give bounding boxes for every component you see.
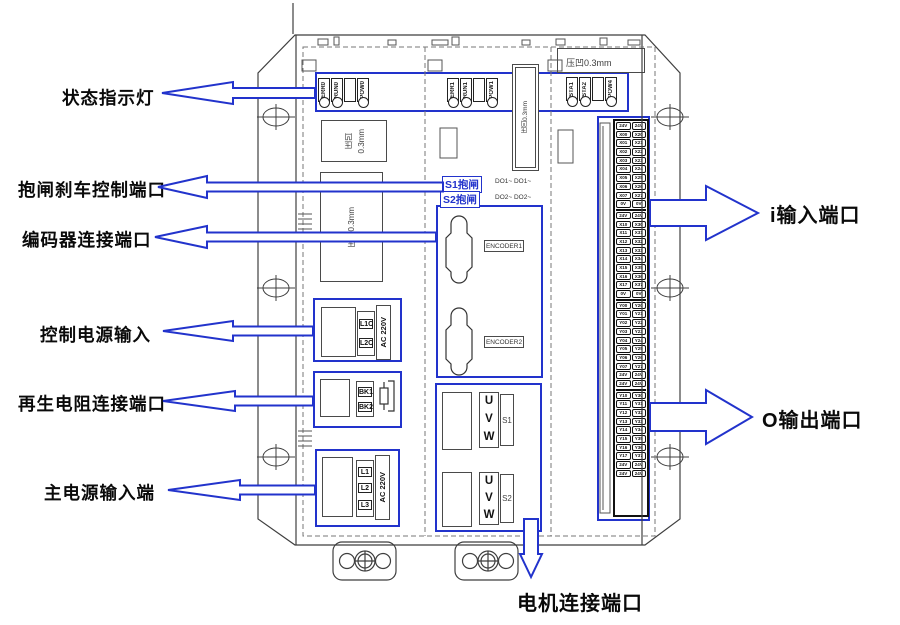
io-terminal-row: Y10Y30: [616, 392, 646, 400]
servo-drive-diagram: 状态指示灯 抱闸刹车控制端口 编码器连接端口 控制电源输入 再生电阻连接端口 主…: [0, 0, 900, 625]
io-terminal: X15: [616, 264, 631, 272]
led-label: ERR0: [321, 82, 327, 98]
io-terminal: Y13: [616, 418, 631, 426]
io-terminal: Y35: [632, 435, 647, 443]
earth-terminal-icon: [355, 551, 375, 571]
callout-motor-port-label: 电机连接端口: [517, 587, 643, 616]
led-label: STA2: [582, 82, 588, 97]
io-terminal: Y06: [616, 354, 631, 362]
io-terminal: Y27: [632, 363, 647, 371]
io-terminal: Y33: [632, 418, 647, 426]
led-lamp: [606, 96, 617, 107]
io-terminal: 24V: [616, 380, 631, 388]
io-terminal: Y12: [616, 409, 631, 417]
io-terminal-array: 24V24VX00X20X01X21X02X22X03X23X04X24X05X…: [613, 119, 649, 517]
terminal-label: BK2: [358, 402, 372, 412]
io-terminal: 0V: [632, 290, 647, 298]
terminal-label: L2C: [359, 338, 373, 348]
arrow-encoder: [155, 226, 436, 248]
io-terminal-group: Y00Y20Y01Y21Y02Y22Y03Y23Y04Y24Y05Y25Y06Y…: [616, 302, 646, 391]
motor-connector-1: [442, 392, 472, 450]
io-terminal: X00: [616, 131, 631, 139]
io-terminal-row: X11X31: [616, 229, 646, 237]
io-terminal-group: Y10Y30Y11Y31Y12Y32Y13Y33Y14Y34Y15Y35Y16Y…: [616, 392, 646, 478]
io-terminal-row: X16X36: [616, 273, 646, 281]
led-lamp: [358, 97, 369, 108]
io-terminal-row: X15X35: [616, 264, 646, 272]
io-terminal: Y20: [632, 302, 647, 310]
io-terminal-row: Y15Y35: [616, 435, 646, 443]
voltage-text: AC 220V: [378, 472, 387, 502]
io-terminal: X34: [632, 255, 647, 263]
io-terminal: Y01: [616, 310, 631, 318]
io-terminal-row: Y04Y24: [616, 337, 646, 345]
io-terminal: 0V: [616, 200, 631, 208]
io-terminal-row: X07X27: [616, 192, 646, 200]
io-terminal-group: 24V24VX10X30X11X31X12X32X13X33X14X34X15X…: [616, 212, 646, 301]
io-terminal-row: Y02Y22: [616, 319, 646, 327]
main-power-connector: [322, 457, 353, 517]
arrow-brake: [158, 176, 443, 198]
io-terminal-row: X00X20: [616, 131, 646, 139]
io-terminal: X06: [616, 183, 631, 191]
encoder2-label: ENCODER2: [484, 336, 524, 348]
io-terminal: Y21: [632, 310, 647, 318]
brake-s2-label: S2抱闸: [440, 191, 480, 208]
io-terminal: Y37: [632, 452, 647, 460]
motor-s1-box: S1: [500, 394, 514, 446]
io-terminal: X14: [616, 255, 631, 263]
io-terminal-row: Y12Y32: [616, 409, 646, 417]
io-terminal: X36: [632, 273, 647, 281]
emboss-box-middle: 压凹0.3mm: [512, 64, 539, 171]
io-terminal: Y02: [616, 319, 631, 327]
arrow-output-port: [650, 390, 752, 444]
terminal-label: V: [480, 493, 498, 505]
main-power-terminals: L1L2L3: [356, 460, 374, 517]
io-terminal-row: X06X26: [616, 183, 646, 191]
led-lamp: [448, 97, 459, 108]
io-terminal: Y10: [616, 392, 631, 400]
io-terminal-row: Y11Y31: [616, 400, 646, 408]
io-terminal: X11: [616, 229, 631, 237]
io-terminal: 24V: [632, 380, 647, 388]
io-terminal: X03: [616, 157, 631, 165]
callout-regen-label: 再生电阻连接端口: [18, 391, 166, 416]
io-terminal: X17: [616, 281, 631, 289]
io-terminal-row: Y05Y25: [616, 345, 646, 353]
emboss-text: 压凹0.3mm: [346, 207, 357, 247]
io-terminal: 24V: [616, 122, 631, 130]
led-lamp: [332, 97, 343, 108]
motor-s2-box: S2: [500, 474, 514, 523]
led-lamp: [461, 97, 472, 108]
callout-input-port-label: i输入端口: [770, 199, 861, 228]
io-terminal: X10: [616, 221, 631, 229]
io-terminal: 24V: [632, 212, 647, 220]
terminal-label: L3: [358, 500, 372, 510]
emboss-text: 0.3mm: [357, 129, 366, 153]
regen-connector: [320, 379, 350, 417]
arrow-control-power: [163, 321, 313, 341]
led-slot: [473, 78, 485, 102]
io-terminal-group: 24V24VX00X20X01X21X02X22X03X23X04X24X05X…: [616, 122, 646, 211]
callout-brake-label: 抱闸刹车控制端口: [18, 177, 166, 202]
io-terminal-row: Y06Y26: [616, 354, 646, 362]
terminal-label: U: [480, 396, 498, 408]
arrow-input-port: [650, 186, 758, 240]
led-group-2: STA1STA2POW4: [566, 76, 618, 108]
io-terminal: X13: [616, 247, 631, 255]
io-terminal: Y00: [616, 302, 631, 310]
io-terminal-row: X03X23: [616, 157, 646, 165]
io-terminal-row: Y17Y37: [616, 452, 646, 460]
io-terminal: X01: [616, 139, 631, 147]
io-terminal-row: 24V24V: [616, 122, 646, 130]
io-terminal-row: X13X33: [616, 247, 646, 255]
io-terminal: X27: [632, 192, 647, 200]
led-lamp: [580, 96, 591, 107]
io-terminal: Y36: [632, 444, 647, 452]
io-terminal: X30: [632, 221, 647, 229]
io-terminal: X16: [616, 273, 631, 281]
control-power-terminals: L1CL2C: [357, 311, 375, 356]
io-terminal-row: 24V24V: [616, 212, 646, 220]
arrow-regen: [163, 391, 313, 411]
terminal-label: L1C: [359, 319, 373, 329]
io-terminal-row: X12X32: [616, 238, 646, 246]
io-terminal: X04: [616, 165, 631, 173]
io-terminal: 0V: [616, 290, 631, 298]
terminal-label: L1: [358, 467, 372, 477]
io-terminal: Y07: [616, 363, 631, 371]
io-terminal: 24V: [616, 212, 631, 220]
io-terminal: X24: [632, 165, 647, 173]
terminal-label: L2: [358, 483, 372, 493]
led-lamp: [319, 97, 330, 108]
terminal-label: BK1: [358, 387, 372, 397]
io-terminal-row: X10X30: [616, 221, 646, 229]
io-terminal-row: X17X37: [616, 281, 646, 289]
control-power-connector: [321, 307, 356, 357]
io-terminal: Y17: [616, 452, 631, 460]
encoder2-text: ENCODER2: [486, 339, 522, 346]
io-terminal: Y16: [616, 444, 631, 452]
io-terminal: Y03: [616, 328, 631, 336]
io-terminal: Y14: [616, 426, 631, 434]
led-slot: [344, 78, 356, 102]
emboss-box-left-large: 压凹0.3mm: [320, 172, 383, 282]
io-terminal: 24V: [632, 122, 647, 130]
io-terminal: X37: [632, 281, 647, 289]
io-terminal: X20: [632, 131, 647, 139]
io-terminal: X12: [616, 238, 631, 246]
io-terminal: Y23: [632, 328, 647, 336]
io-terminal: 24V: [632, 461, 647, 469]
encoder1-label: ENCODER1: [484, 240, 524, 252]
main-power-voltage: AC 220V: [375, 455, 390, 520]
arrow-status: [162, 82, 315, 104]
io-terminal: Y25: [632, 345, 647, 353]
emboss-box-right-top: 压凹0.3mm: [557, 48, 645, 73]
motor-uvw-1: UVW: [479, 392, 499, 448]
io-terminal-row: X05X25: [616, 174, 646, 182]
encoder-port-box: [436, 205, 543, 378]
motor-uvw-2: UVW: [479, 472, 499, 525]
io-terminal: X25: [632, 174, 647, 182]
io-terminal-row: 24V24V: [616, 470, 646, 478]
io-terminal-row: X04X24: [616, 165, 646, 173]
led-group-0: ERR0RUN0POW0: [318, 77, 370, 109]
io-terminal: X07: [616, 192, 631, 200]
io-terminal: X02: [616, 148, 631, 156]
io-terminal: X31: [632, 229, 647, 237]
io-terminal: Y04: [616, 337, 631, 345]
io-terminal: X05: [616, 174, 631, 182]
io-terminal: X35: [632, 264, 647, 272]
brake-do1-label: DO1~ DO1~: [495, 178, 531, 185]
io-terminal-row: X01X21: [616, 139, 646, 147]
led-label: STA1: [569, 82, 575, 97]
motor-s1-text: S1: [502, 416, 512, 425]
io-terminal: Y15: [616, 435, 631, 443]
io-terminal-row: 24V24V: [616, 461, 646, 469]
io-terminal-row: Y13Y33: [616, 418, 646, 426]
io-terminal-row: Y01Y21: [616, 310, 646, 318]
led-lamp: [567, 96, 578, 107]
led-slot: [592, 77, 604, 101]
emboss-text: 压凹0.3mm: [566, 56, 612, 69]
io-terminal: Y34: [632, 426, 647, 434]
io-terminal: Y30: [632, 392, 647, 400]
io-terminal-row: 24V24V: [616, 380, 646, 388]
terminal-label: U: [480, 476, 498, 488]
callout-encoder-label: 编码器连接端口: [22, 227, 152, 252]
io-terminal-row: 0V0V: [616, 290, 646, 298]
io-terminal-row: Y07Y27: [616, 363, 646, 371]
io-terminal: Y05: [616, 345, 631, 353]
io-terminal-row: Y14Y34: [616, 426, 646, 434]
io-terminal-row: 0V0V: [616, 200, 646, 208]
io-terminal: Y31: [632, 400, 647, 408]
emboss-text: 压凹: [343, 133, 354, 149]
voltage-text: AC 220V: [379, 317, 388, 347]
io-terminal-row: Y03Y23: [616, 328, 646, 336]
io-terminal: X23: [632, 157, 647, 165]
io-terminal: 24V: [616, 461, 631, 469]
regen-terminals: BK1BK2: [356, 381, 374, 417]
io-terminal: Y26: [632, 354, 647, 362]
callout-output-port-label: O输出端口: [762, 404, 863, 433]
led-group-1: ERR1RUN1POW1: [447, 77, 499, 109]
io-terminal: 24V: [632, 371, 647, 379]
emboss-text: 压凹0.3mm: [521, 101, 531, 134]
callout-control-power-label: 控制电源输入: [40, 322, 151, 347]
led-label: ERR1: [450, 82, 456, 98]
io-terminal: Y11: [616, 400, 631, 408]
motor-s2-text: S2: [502, 494, 512, 503]
callout-main-power-label: 主电源输入端: [44, 480, 155, 505]
io-terminal: Y24: [632, 337, 647, 345]
io-terminal: X22: [632, 148, 647, 156]
io-terminal: X26: [632, 183, 647, 191]
brake-do2-label: DO2~ DO2~: [495, 194, 531, 201]
io-terminal-row: Y00Y20: [616, 302, 646, 310]
arrow-main-power: [168, 480, 315, 500]
io-terminal: Y32: [632, 409, 647, 417]
led-lamp: [487, 97, 498, 108]
io-terminal: 24V: [632, 470, 647, 478]
io-terminal-row: X14X34: [616, 255, 646, 263]
mounting-feet: [333, 542, 518, 580]
io-terminal-row: Y16Y36: [616, 444, 646, 452]
led-label: RUN1: [463, 82, 469, 98]
terminal-label: W: [480, 510, 498, 522]
io-terminal: 0V: [632, 200, 647, 208]
encoder1-text: ENCODER1: [486, 243, 522, 250]
terminal-label: V: [480, 414, 498, 426]
led-label: RUN0: [334, 82, 340, 98]
terminal-label: W: [480, 432, 498, 444]
io-terminal: X21: [632, 139, 647, 147]
io-terminal: X32: [632, 238, 647, 246]
io-terminal: 24V: [616, 371, 631, 379]
io-terminal: Y22: [632, 319, 647, 327]
io-terminal-row: X02X22: [616, 148, 646, 156]
earth-terminal-icon: [478, 551, 498, 571]
emboss-box-left-small: 压凹 0.3mm: [321, 120, 387, 162]
callout-status-label: 状态指示灯: [62, 85, 155, 110]
motor-connector-2: [442, 472, 472, 527]
io-terminal: 24V: [616, 470, 631, 478]
io-terminal: X33: [632, 247, 647, 255]
io-terminal-row: 24V24V: [616, 371, 646, 379]
control-power-voltage: AC 220V: [376, 305, 391, 360]
